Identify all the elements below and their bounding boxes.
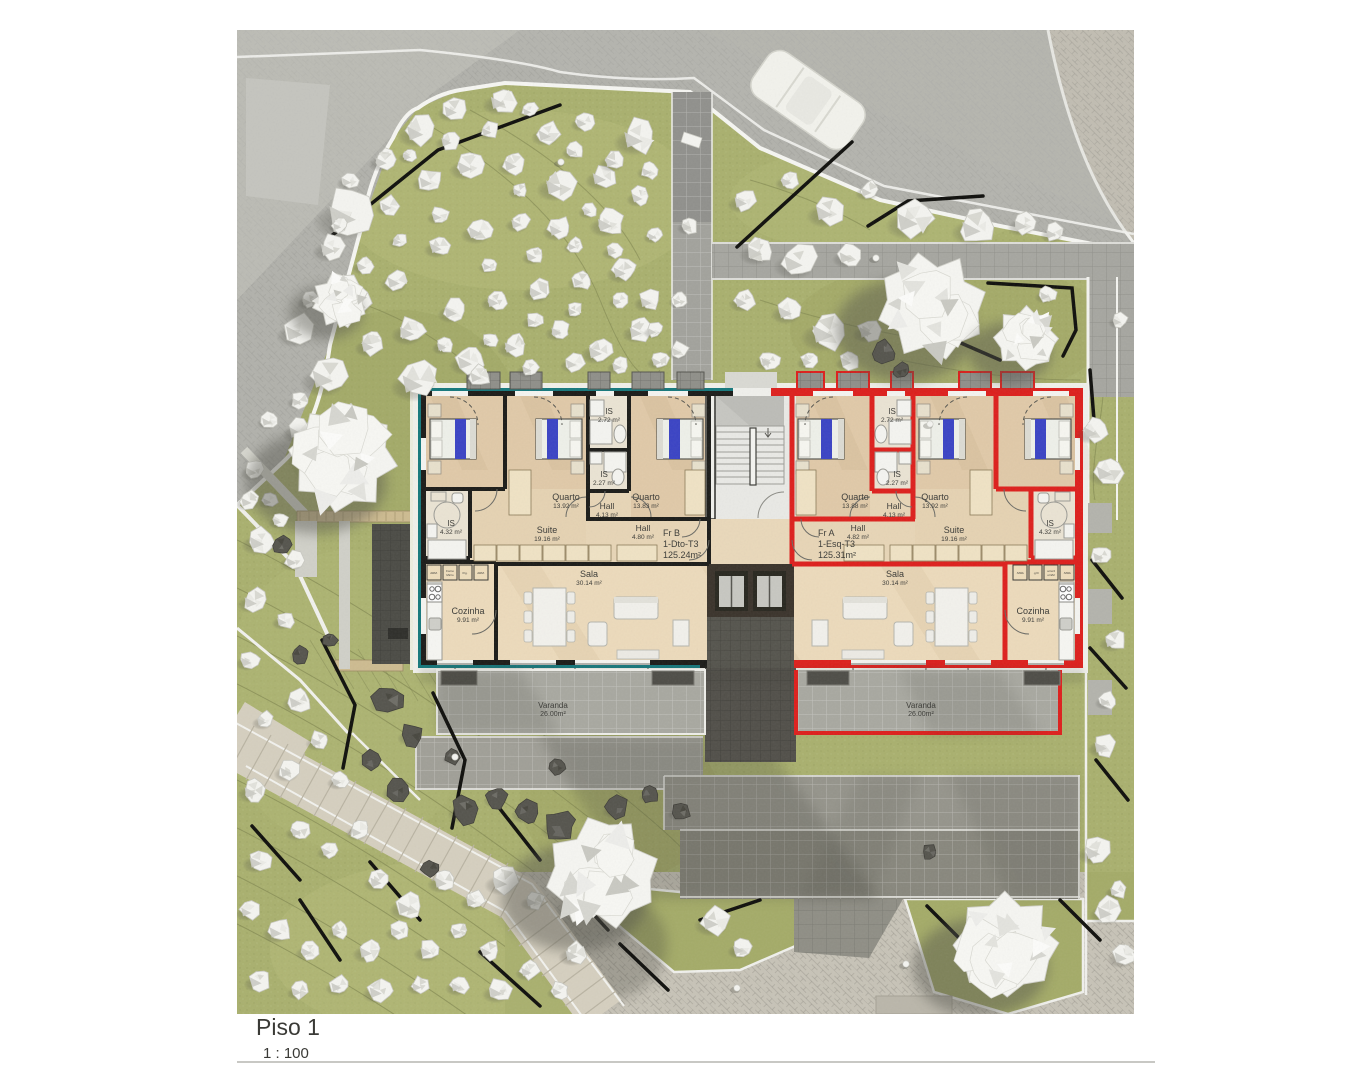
svg-text:1 : 100: 1 : 100 — [263, 1045, 309, 1062]
svg-text:Piso 1: Piso 1 — [256, 1014, 320, 1040]
